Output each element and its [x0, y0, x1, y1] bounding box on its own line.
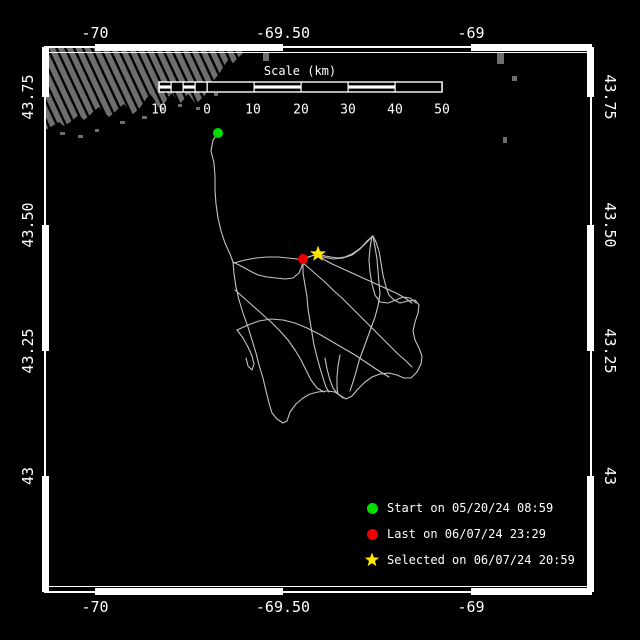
last-marker[interactable] [298, 254, 308, 264]
start-marker-icon [364, 500, 380, 516]
map-canvas[interactable] [0, 0, 640, 640]
top-axis-label: -69 [457, 24, 484, 42]
scale-bar-label: 10 [151, 103, 167, 118]
last-marker-icon [364, 526, 380, 542]
bottom-axis-label: -69.50 [256, 598, 310, 616]
top-axis-label: -69.50 [256, 24, 310, 42]
top-axis-label: -70 [81, 24, 108, 42]
scale-bar-label: 30 [340, 103, 356, 118]
scale-bar-label: 40 [387, 103, 403, 118]
right-axis-label: 43.50 [601, 202, 619, 247]
left-axis-label: 43 [19, 467, 37, 485]
legend-item-last: Last on 06/07/24 23:29 [364, 526, 546, 542]
track-map-screenshot: -70-69.50-69-70-69.50-6943.7543.5043.254… [0, 0, 640, 640]
legend-last-label: Last on 06/07/24 23:29 [387, 527, 546, 541]
bottom-axis-label: -70 [81, 598, 108, 616]
right-axis-label: 43.25 [601, 328, 619, 373]
scale-bar-graphic [159, 82, 443, 92]
left-axis-label: 43.75 [19, 74, 37, 119]
selected-marker-icon [364, 552, 380, 568]
left-axis-label: 43.50 [19, 202, 37, 247]
scale-bar-title: Scale (km) [264, 64, 336, 78]
legend-start-label: Start on 05/20/24 08:59 [387, 501, 553, 515]
legend-item-selected: Selected on 06/07/24 20:59 [364, 552, 575, 568]
scale-bar-label: 0 [203, 103, 211, 118]
track-path[interactable] [211, 133, 422, 423]
legend-item-start: Start on 05/20/24 08:59 [364, 500, 553, 516]
scale-bar-label: 50 [434, 103, 450, 118]
legend-selected-label: Selected on 06/07/24 20:59 [387, 553, 575, 567]
bottom-axis-label: -69 [457, 598, 484, 616]
start-marker[interactable] [213, 128, 223, 138]
left-axis-label: 43.25 [19, 328, 37, 373]
land-mass [45, 47, 517, 143]
scale-bar-label: 10 [245, 103, 261, 118]
scale-bar-label: 20 [293, 103, 309, 118]
right-axis-label: 43.75 [601, 74, 619, 119]
right-axis-label: 43 [601, 467, 619, 485]
